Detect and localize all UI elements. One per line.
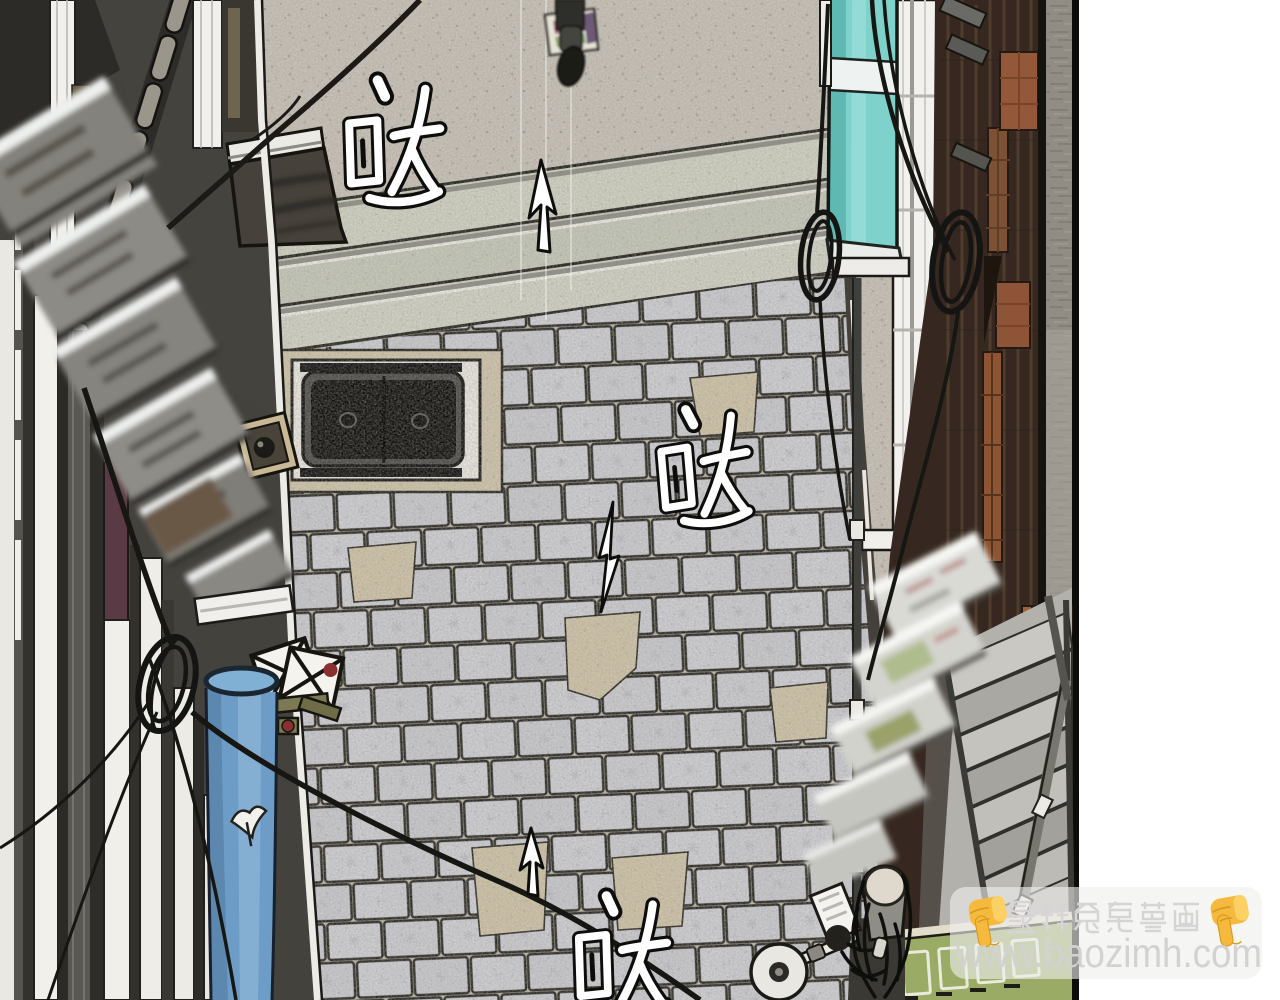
svg-text:www.baozimh.com: www.baozimh.com	[955, 930, 1262, 976]
